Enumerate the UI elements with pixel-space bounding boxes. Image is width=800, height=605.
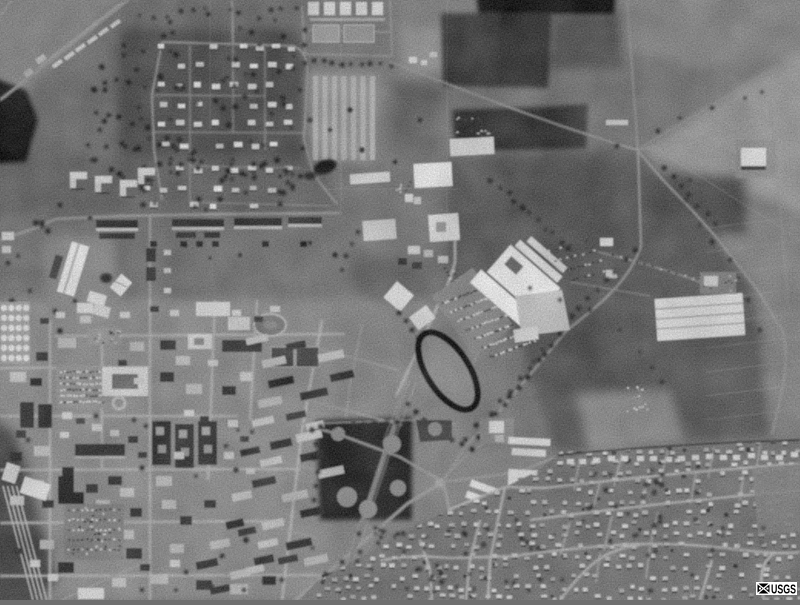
svg-text:USGS: USGS [771, 583, 796, 597]
